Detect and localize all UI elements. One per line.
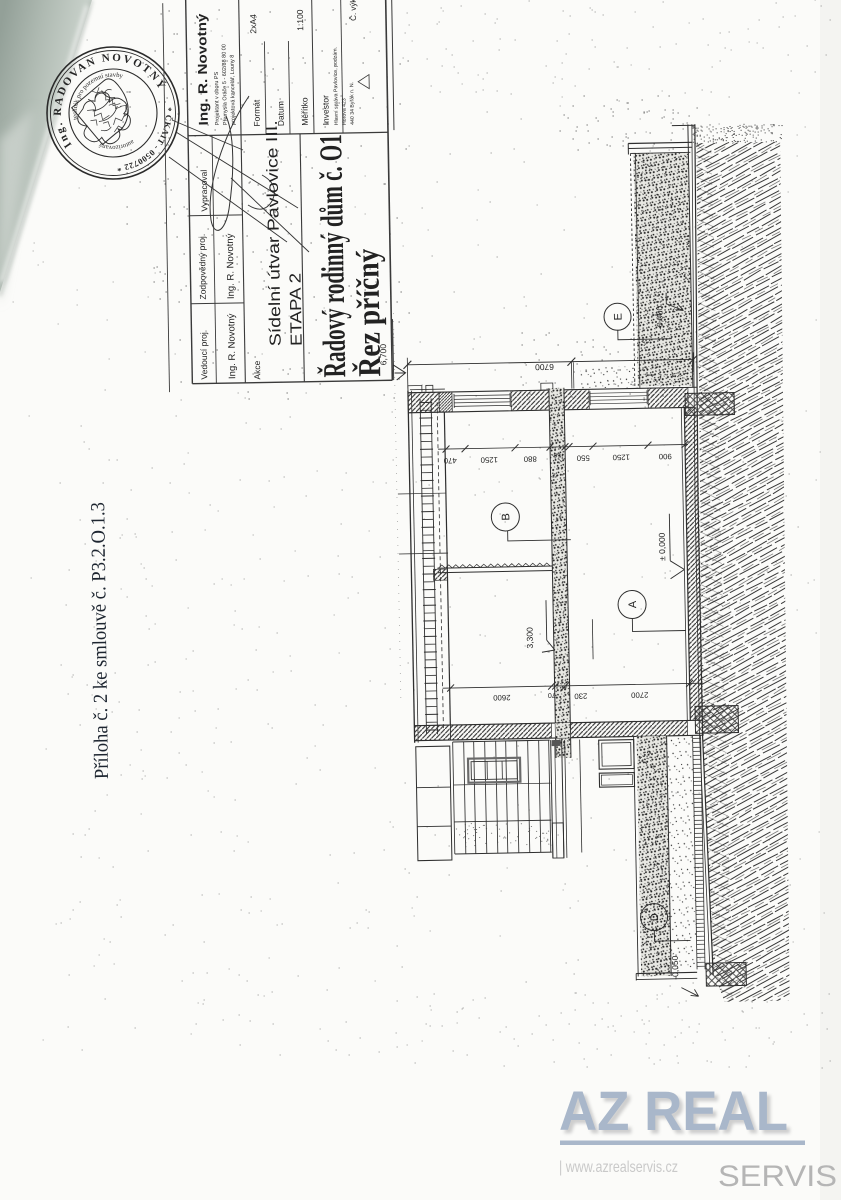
svg-text:230: 230 — [574, 691, 588, 700]
svg-text:2600: 2600 — [492, 693, 510, 702]
svg-text:Ing. R. Novotný: Ing. R. Novotný — [194, 13, 211, 126]
svg-text:Datum: Datum — [275, 101, 285, 126]
svg-text:Formát: Formát — [251, 99, 261, 127]
svg-text:60: 60 — [553, 451, 561, 458]
svg-text:70: 70 — [548, 691, 556, 698]
svg-text:Ing. R. Novotný: Ing. R. Novotný — [225, 233, 237, 299]
svg-text:Příloha č. 2 ke smlouvě č. P3.: Příloha č. 2 ke smlouvě č. P3.2.O.1.3 — [87, 502, 113, 779]
svg-text:900: 900 — [658, 452, 672, 461]
svg-text:Řadový rodinný dům č. O1: Řadový rodinný dům č. O1 — [312, 134, 352, 378]
svg-text:± 0,000: ± 0,000 — [657, 532, 668, 561]
svg-text:ETAPA 2: ETAPA 2 — [287, 273, 305, 346]
svg-text:Vedoucí proj.: Vedoucí proj. — [198, 330, 209, 380]
svg-text:B: B — [500, 513, 512, 521]
svg-text:-0,050: -0,050 — [670, 955, 680, 980]
svg-text:3,300: 3,300 — [524, 627, 534, 649]
svg-text:Č. výkresu: Č. výkresu — [348, 0, 358, 21]
svg-text:470: 470 — [443, 456, 457, 465]
svg-text:Horova 423: Horova 423 — [341, 98, 347, 125]
svg-text:Ing. R. Novotný: Ing. R. Novotný — [226, 313, 238, 379]
svg-text:Zodpovědný proj.: Zodpovědný proj. — [197, 234, 208, 300]
svg-text:Vypracoval: Vypracoval — [199, 170, 210, 212]
svg-text:D: D — [649, 913, 661, 921]
svg-text:AZ REAL: AZ REAL — [559, 1079, 788, 1142]
svg-text:A: A — [627, 600, 639, 608]
svg-text:6,700: 6,700 — [378, 344, 388, 366]
svg-text:1250: 1250 — [480, 455, 498, 464]
svg-text:E: E — [612, 313, 624, 321]
svg-text:2xA4: 2xA4 — [248, 14, 258, 34]
svg-text:Měřítko: Měřítko — [299, 97, 309, 126]
svg-text:| www.azrealservis.cz: | www.azrealservis.cz — [559, 1159, 678, 1176]
svg-text:1250: 1250 — [612, 453, 630, 462]
svg-text:1:100: 1:100 — [295, 9, 305, 31]
svg-text:-0,050: -0,050 — [654, 305, 664, 330]
svg-text:projektová kancelář, Louny 8: projektová kancelář, Louny 8 — [230, 55, 237, 125]
svg-text:440 34 Byřák n. N.: 440 34 Byřák n. N. — [349, 82, 356, 125]
svg-text:550: 550 — [576, 453, 590, 462]
svg-text:Akce: Akce — [252, 360, 262, 379]
svg-text:880: 880 — [523, 454, 537, 463]
svg-text:2700: 2700 — [630, 690, 648, 699]
svg-text:Projektant v oboru PS: Projektant v oboru PS — [214, 71, 221, 125]
svg-text:SERVIS: SERVIS — [718, 1160, 837, 1193]
svg-text:6700: 6700 — [535, 362, 554, 372]
svg-text:Investor: Investor — [320, 95, 331, 126]
